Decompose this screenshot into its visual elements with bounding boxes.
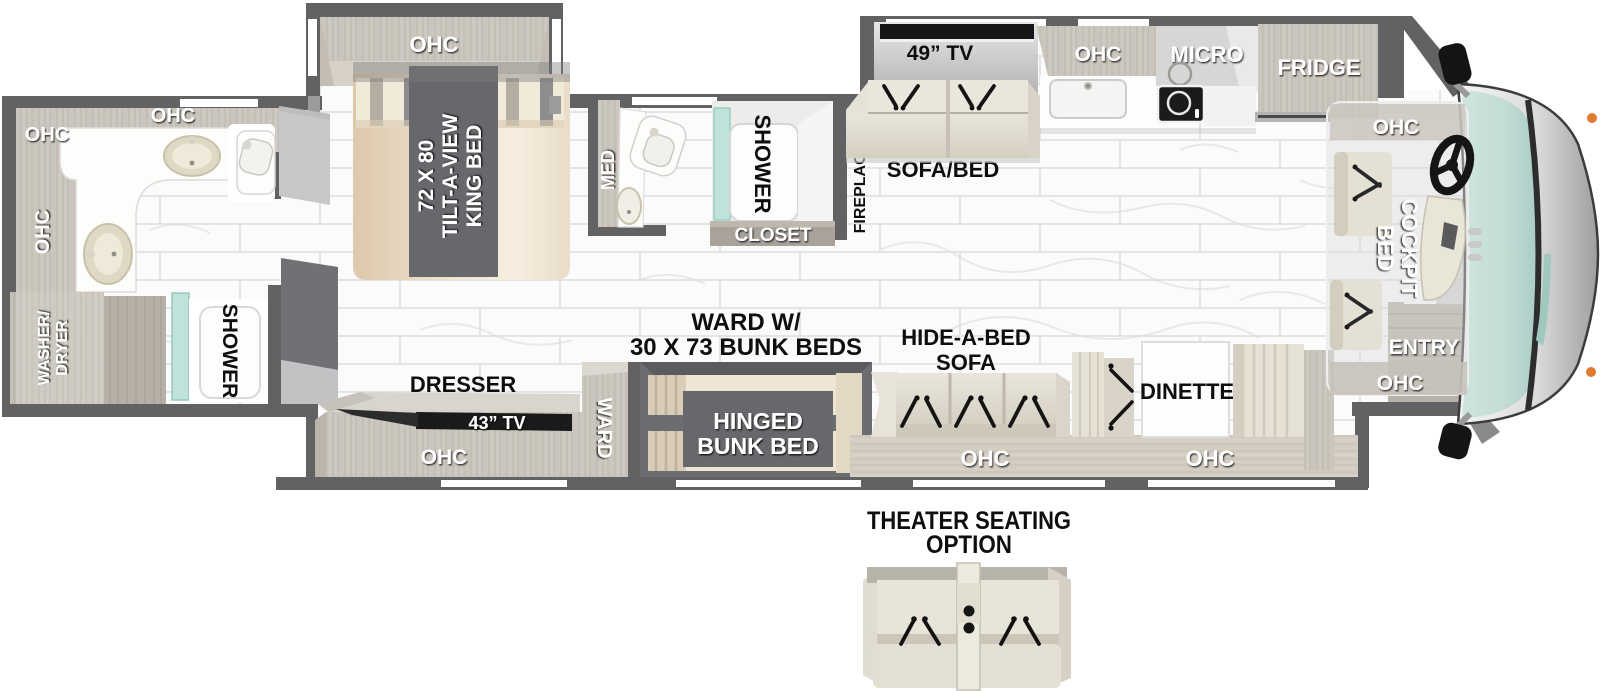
- svg-text:KING BED: KING BED: [463, 125, 486, 228]
- svg-text:DINETTE: DINETTE: [1140, 379, 1234, 404]
- svg-text:HIDE-A-BED: HIDE-A-BED: [901, 325, 1031, 350]
- svg-text:SHOWER: SHOWER: [218, 304, 241, 399]
- svg-text:COCKPIT: COCKPIT: [1397, 199, 1422, 299]
- svg-text:BED: BED: [1373, 225, 1398, 271]
- svg-text:WARD: WARD: [593, 397, 615, 458]
- svg-text:SHOWER: SHOWER: [750, 115, 775, 214]
- svg-text:WASHER/: WASHER/: [36, 310, 53, 385]
- svg-text:OHC: OHC: [410, 32, 459, 57]
- svg-text:30 X 73 BUNK BEDS: 30 X 73 BUNK BEDS: [630, 334, 862, 361]
- svg-text:OHC: OHC: [32, 210, 54, 254]
- svg-text:OHC: OHC: [151, 105, 195, 127]
- svg-text:OHC: OHC: [1373, 116, 1420, 139]
- svg-text:CLOSET: CLOSET: [734, 225, 811, 246]
- svg-text:HINGED: HINGED: [713, 408, 802, 434]
- svg-text:OHC: OHC: [1075, 43, 1122, 66]
- svg-text:DRESSER: DRESSER: [410, 372, 516, 397]
- svg-text:43” TV: 43” TV: [468, 413, 525, 433]
- svg-text:72 X 80: 72 X 80: [415, 140, 438, 212]
- svg-text:TILT-A-VIEW: TILT-A-VIEW: [439, 114, 462, 239]
- svg-text:OHC: OHC: [421, 446, 468, 469]
- svg-text:BUNK BED: BUNK BED: [697, 433, 818, 459]
- svg-text:ENTRY: ENTRY: [1389, 336, 1459, 359]
- svg-text:49” TV: 49” TV: [907, 42, 974, 65]
- svg-text:OHC: OHC: [1186, 446, 1235, 471]
- svg-text:FRIDGE: FRIDGE: [1277, 55, 1360, 80]
- svg-text:DRYER: DRYER: [54, 320, 71, 376]
- svg-text:OPTION: OPTION: [926, 531, 1012, 559]
- svg-text:OHC: OHC: [961, 446, 1010, 471]
- svg-text:MED: MED: [598, 150, 618, 190]
- svg-text:OHC: OHC: [1377, 372, 1424, 395]
- svg-text:SOFA: SOFA: [936, 350, 996, 375]
- svg-text:OHC: OHC: [25, 124, 69, 146]
- svg-text:WARD W/: WARD W/: [691, 309, 801, 336]
